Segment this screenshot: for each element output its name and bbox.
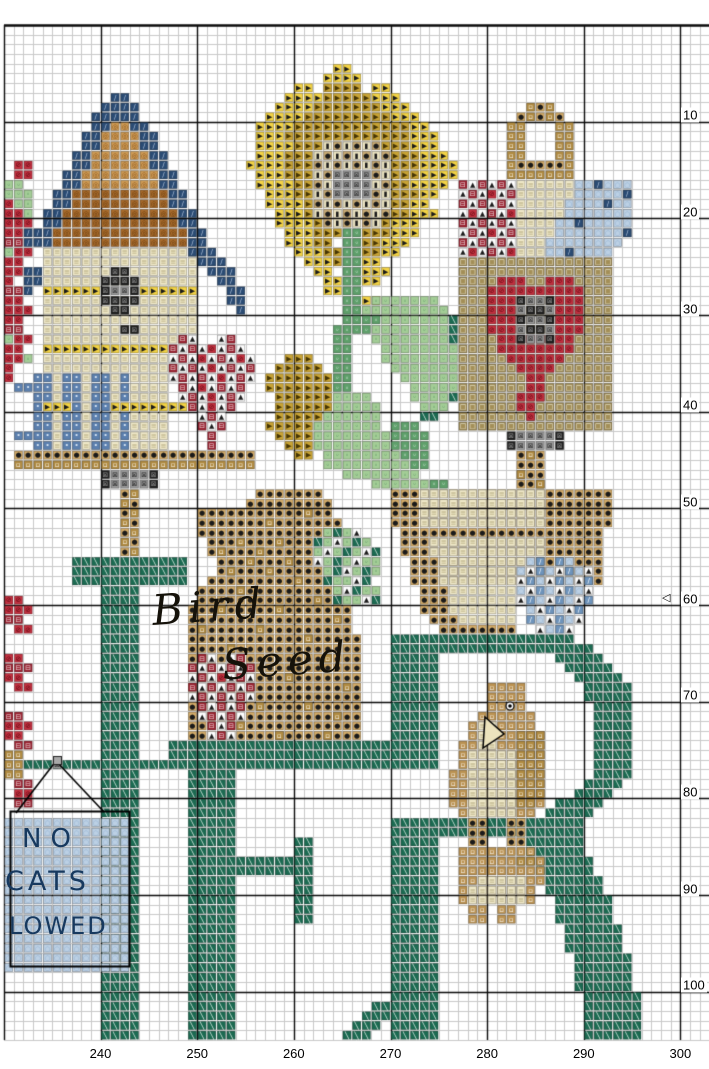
y-axis-label: 60 bbox=[681, 591, 699, 606]
y-axis-label: 80 bbox=[681, 784, 699, 799]
y-axis-label: 50 bbox=[681, 494, 699, 509]
pattern-canvas bbox=[0, 0, 709, 1069]
sign-text-line3: LOWED bbox=[9, 912, 108, 940]
x-axis-label: 260 bbox=[282, 1046, 306, 1061]
bird-seed-text-word1: Bird bbox=[150, 578, 268, 635]
sign-text-line1: NO bbox=[22, 824, 80, 854]
x-axis-label: 290 bbox=[572, 1046, 596, 1061]
x-axis-label: 270 bbox=[379, 1046, 403, 1061]
sign-text-line2: CATS bbox=[5, 866, 90, 897]
y-axis-label: 70 bbox=[681, 688, 699, 703]
x-axis-label: 250 bbox=[185, 1046, 209, 1061]
y-axis-label: 40 bbox=[681, 398, 699, 413]
y-axis-label: 20 bbox=[681, 204, 699, 219]
center-row-marker-icon: ◁ bbox=[662, 592, 670, 603]
y-axis-label: 100 bbox=[681, 978, 707, 993]
x-axis-label: 280 bbox=[475, 1046, 499, 1061]
y-axis-label: 30 bbox=[681, 301, 699, 316]
y-axis-label: 10 bbox=[681, 108, 699, 123]
y-axis-label: 90 bbox=[681, 881, 699, 896]
x-axis-label: 240 bbox=[89, 1046, 113, 1061]
bird-seed-text-word2: Seed bbox=[220, 632, 352, 690]
x-axis-label: 300 bbox=[669, 1046, 693, 1061]
cross-stitch-pattern-chart: 2402502602702802903001020304050607080901… bbox=[0, 0, 709, 1069]
